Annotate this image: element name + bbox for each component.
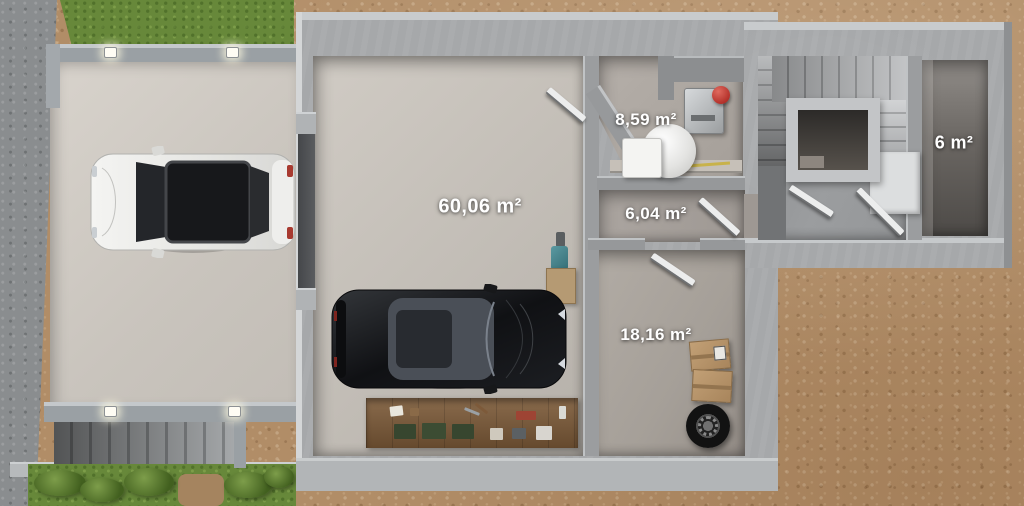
workbench-item bbox=[464, 407, 480, 416]
workbench-item bbox=[422, 423, 446, 439]
sports-car bbox=[330, 284, 568, 394]
area-label-garage: 60,06 m² bbox=[438, 196, 521, 219]
wall-top-face bbox=[296, 12, 778, 20]
jerry-can bbox=[551, 246, 568, 270]
workbench bbox=[366, 398, 578, 448]
area-label-storage: 18,16 m² bbox=[620, 325, 691, 345]
shrub bbox=[80, 478, 124, 502]
floor-plan-render: 60,06 m² 8,59 m² 6,04 m² 18,16 m² 6 m² bbox=[0, 0, 1024, 506]
garage-door-frame-bottom bbox=[296, 288, 316, 310]
wall-light bbox=[226, 47, 239, 58]
wall-light bbox=[104, 406, 117, 417]
garden-bottom bbox=[28, 464, 296, 506]
cardboard-box bbox=[691, 369, 733, 403]
driveway-wall-left bbox=[46, 44, 60, 108]
workbench-item bbox=[516, 411, 536, 420]
driveway-wall-bottom bbox=[44, 402, 300, 422]
stair-void-floor bbox=[800, 156, 824, 168]
suv-car bbox=[88, 146, 298, 258]
workbench-item bbox=[536, 426, 552, 440]
wall-light bbox=[104, 47, 117, 58]
expansion-tank bbox=[712, 86, 730, 104]
wing-right-wall-edge bbox=[1004, 22, 1012, 268]
workbench-item bbox=[394, 424, 416, 439]
driveway-wall-top bbox=[46, 44, 298, 62]
workbench-item bbox=[490, 428, 503, 440]
tire-stack bbox=[686, 404, 730, 448]
wall-light bbox=[228, 406, 241, 417]
wall-utility-stub-leg bbox=[658, 56, 674, 100]
shrub bbox=[264, 466, 294, 488]
staircase-top-flight bbox=[772, 56, 906, 102]
exterior-stairs bbox=[54, 422, 234, 464]
exterior-stairs-side-wall bbox=[234, 422, 246, 468]
washing-machine bbox=[622, 138, 662, 178]
area-label-cellar: 6 m² bbox=[935, 133, 974, 154]
workbench-item bbox=[559, 406, 566, 419]
wall-top-face bbox=[744, 22, 1012, 30]
staircase-right-flight bbox=[876, 100, 906, 154]
wall-hall-storage-right bbox=[700, 238, 745, 250]
outer-wall-bottom bbox=[296, 458, 778, 491]
bottle bbox=[556, 232, 565, 247]
garage-door bbox=[298, 132, 315, 290]
garage-room bbox=[313, 56, 585, 456]
garage-door-frame-top bbox=[296, 112, 316, 134]
garden-path bbox=[178, 474, 224, 506]
grass-strip-top bbox=[46, 0, 294, 47]
wall-hall-storage-left bbox=[588, 238, 645, 250]
workbench-item bbox=[452, 424, 474, 439]
shrub bbox=[34, 470, 86, 496]
workbench-item bbox=[389, 405, 403, 417]
understair-area bbox=[758, 166, 786, 240]
shrub bbox=[124, 468, 174, 496]
workbench-item bbox=[410, 408, 419, 416]
wall-utility-hall bbox=[597, 176, 745, 190]
cardboard-box bbox=[689, 338, 731, 371]
area-label-utility: 8,59 m² bbox=[615, 110, 676, 130]
workbench-item bbox=[512, 428, 526, 439]
area-label-hallway: 6,04 m² bbox=[625, 204, 686, 224]
